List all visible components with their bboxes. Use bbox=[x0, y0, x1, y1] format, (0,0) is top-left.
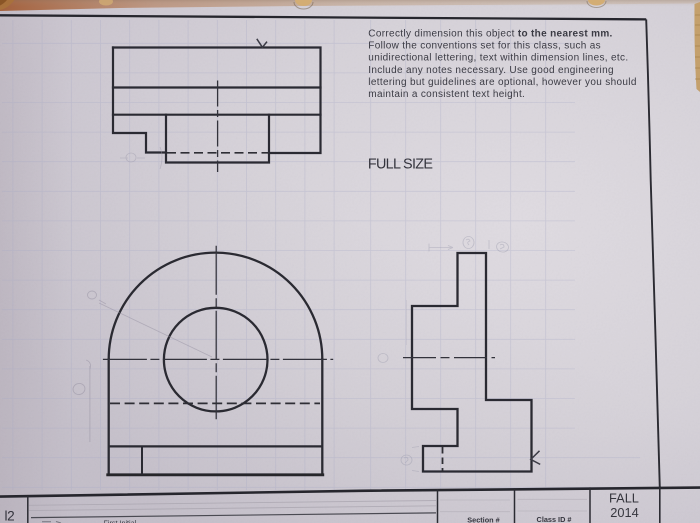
svg-text:Section #: Section # bbox=[467, 516, 499, 523]
svg-text:Include any notes necessary.: Include any notes necessary. Use good en… bbox=[368, 65, 614, 76]
svg-text:First Initial: First Initial bbox=[104, 519, 137, 523]
svg-text:unidirectional lettering, text: unidirectional lettering, text within di… bbox=[368, 53, 628, 64]
svg-text:l2: l2 bbox=[5, 509, 15, 523]
svg-text:lettering but guidelines are o: lettering but guidelines are optional, h… bbox=[368, 77, 636, 88]
svg-text:maintain a consistent text hei: maintain a consistent text height. bbox=[368, 89, 525, 100]
svg-text:Follow the conventions set for: Follow the conventions set for this clas… bbox=[368, 41, 601, 52]
svg-text:FALL: FALL bbox=[609, 491, 639, 506]
svg-text:FULL SIZE: FULL SIZE bbox=[368, 157, 432, 173]
svg-text:Correctly dimension this objec: Correctly dimension this object to the n… bbox=[368, 28, 612, 39]
svg-text:Class ID #: Class ID # bbox=[537, 515, 572, 523]
svg-text:2014: 2014 bbox=[610, 505, 638, 520]
